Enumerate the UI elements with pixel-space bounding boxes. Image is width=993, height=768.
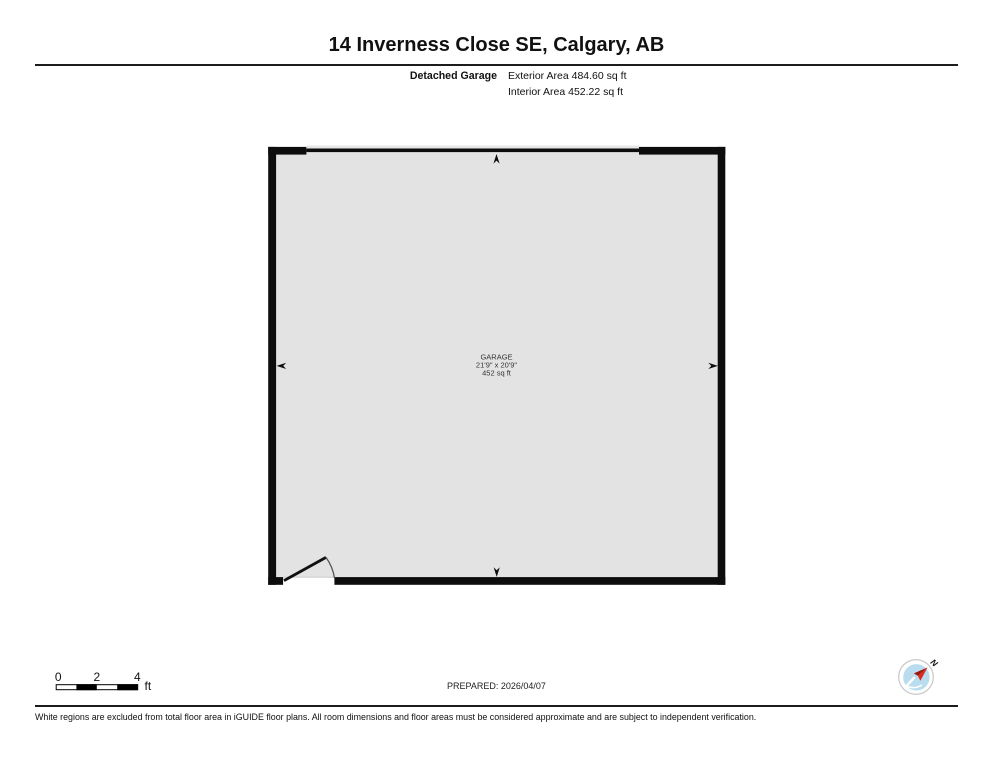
svg-text:452 sq ft: 452 sq ft [482,369,512,378]
